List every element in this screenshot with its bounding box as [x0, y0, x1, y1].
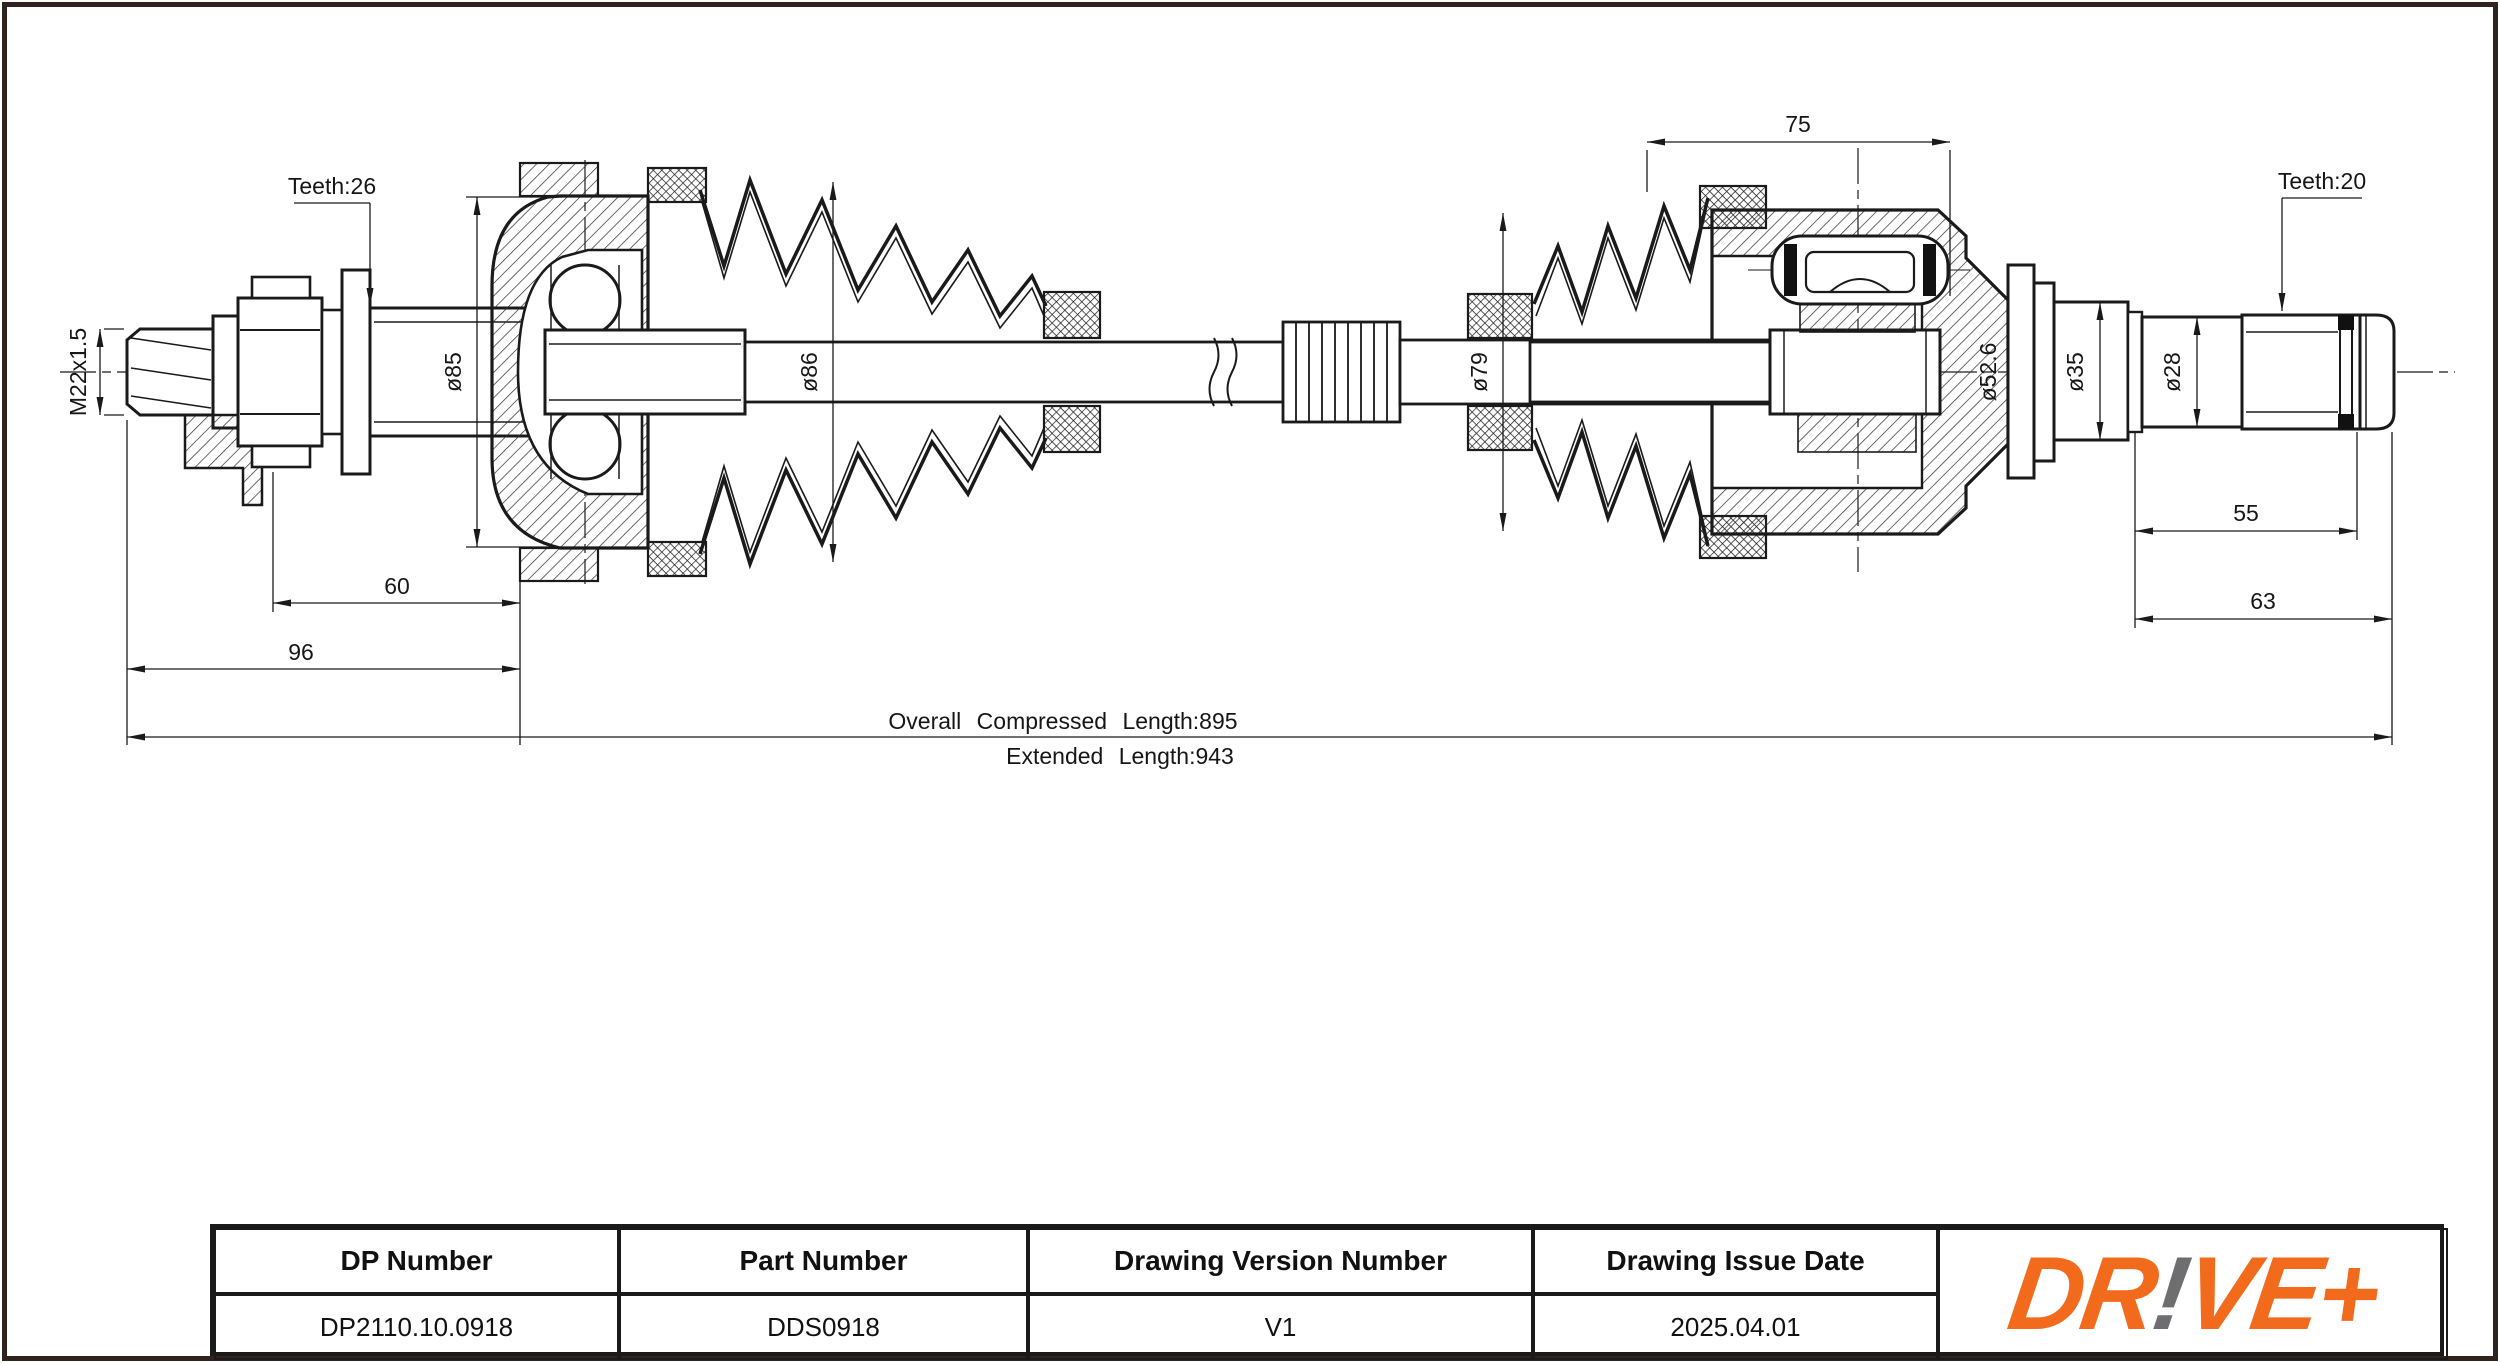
- title-block-value-dp-number: DP2110.10.0918: [214, 1294, 619, 1360]
- outer-cv-joint: [492, 163, 745, 581]
- title-block-header-issue-date: Drawing Issue Date: [1533, 1228, 1938, 1294]
- title-block-value-part-number: DDS0918: [619, 1294, 1028, 1360]
- output-shaft: [2054, 302, 2394, 440]
- driveplus-logo: DR!VE+: [2003, 1242, 2384, 1346]
- logo-text-ve-plus: VE+: [2178, 1236, 2385, 1352]
- label-dim75: 75: [1785, 111, 1811, 137]
- title-block-value-issue-date: 2025.04.01: [1533, 1294, 1938, 1360]
- title-block-header-drawing-version: Drawing Version Number: [1028, 1228, 1533, 1294]
- label-dia86: ø86: [796, 352, 822, 392]
- title-block-header-dp-number: DP Number: [214, 1228, 619, 1294]
- drawing-sheet: Teeth:26 M22x1.5 ø85 ø86 ø79 ø52.6 ø35 ø…: [0, 0, 2500, 1363]
- label-extended: Extended Length:943: [1006, 743, 1234, 769]
- brand-logo: DR!VE+: [1938, 1228, 2448, 1360]
- label-thread: M22x1.5: [65, 328, 91, 416]
- title-block: DP Number Part Number Drawing Version Nu…: [210, 1224, 2444, 1356]
- title-block-header-part-number: Part Number: [619, 1228, 1028, 1294]
- label-dia35: ø35: [2062, 352, 2088, 392]
- label-overall-compressed: Overall Compressed Length:895: [888, 708, 1237, 734]
- label-dia52-6: ø52.6: [1975, 343, 2001, 402]
- title-block-value-drawing-version: V1: [1028, 1294, 1533, 1360]
- label-dia79: ø79: [1466, 352, 1492, 392]
- technical-drawing: Teeth:26 M22x1.5 ø85 ø86 ø79 ø52.6 ø35 ø…: [0, 0, 2500, 1363]
- label-dim60: 60: [384, 573, 410, 599]
- label-dia85: ø85: [440, 352, 466, 392]
- label-dim96: 96: [288, 639, 314, 665]
- left-stub-assembly: [127, 270, 370, 505]
- label-teeth-left: Teeth:26: [288, 173, 376, 199]
- label-dia28: ø28: [2159, 352, 2185, 392]
- logo-text-dr: DR: [2002, 1236, 2163, 1352]
- label-teeth-right: Teeth:20: [2278, 168, 2366, 194]
- label-dim55: 55: [2233, 500, 2259, 526]
- label-dim63: 63: [2250, 588, 2276, 614]
